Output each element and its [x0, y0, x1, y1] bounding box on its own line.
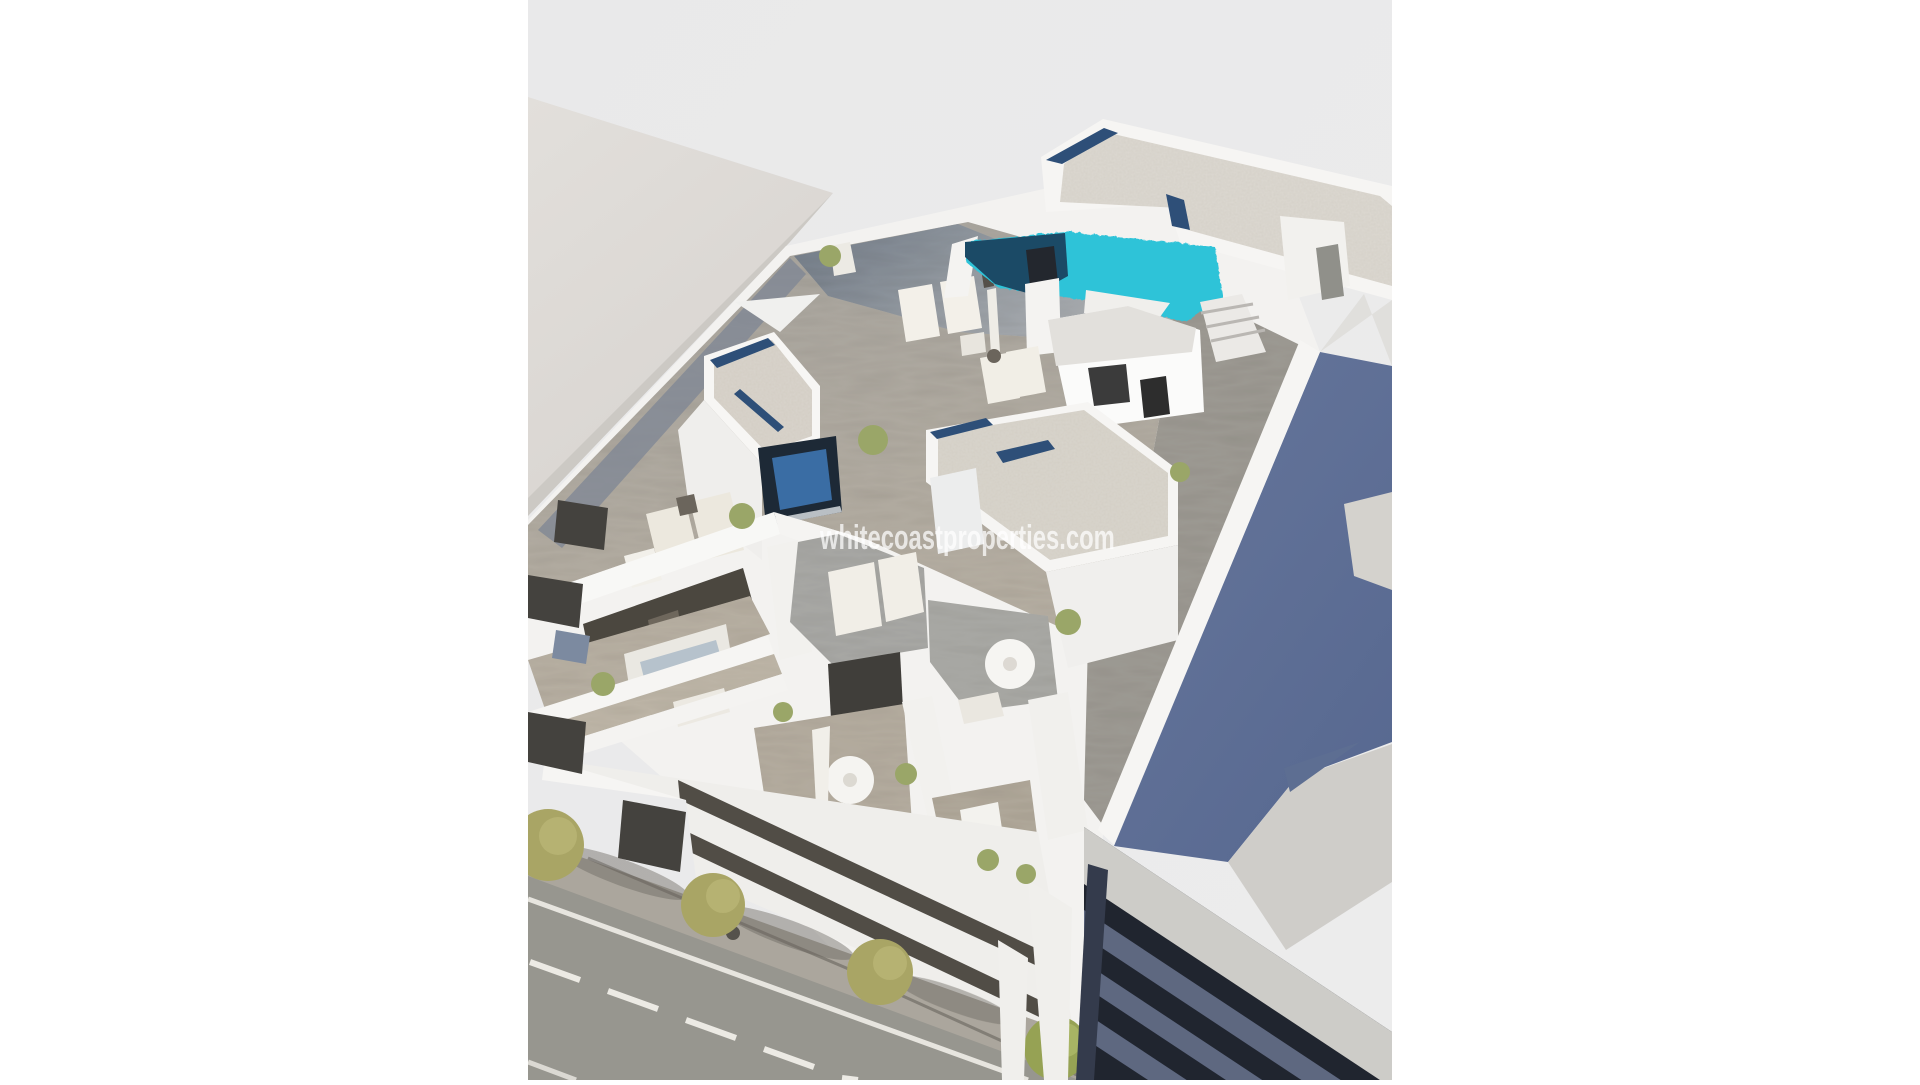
svg-text:whitecoastproperties.com: whitecoastproperties.com [819, 519, 1115, 557]
